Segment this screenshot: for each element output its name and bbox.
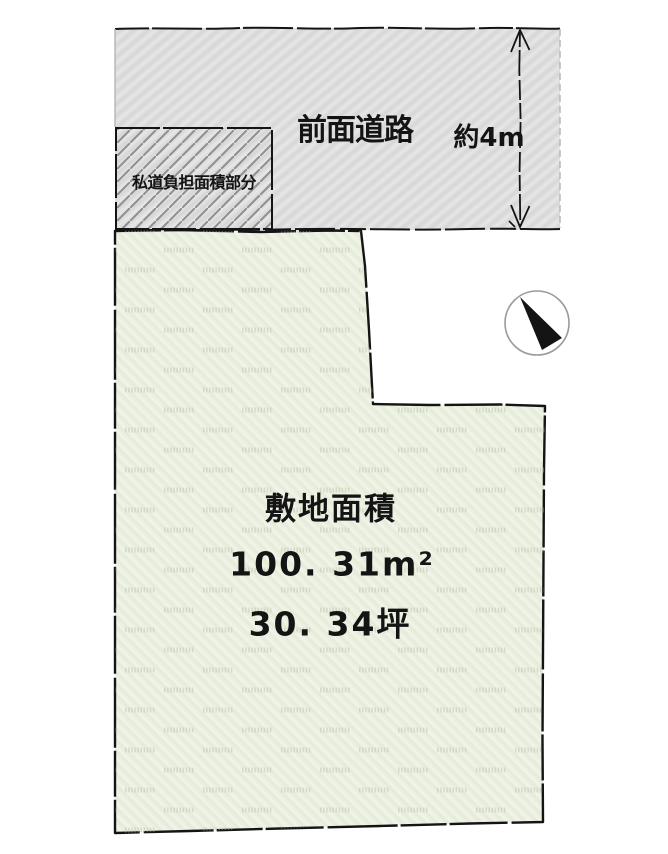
site-parcel [115,230,545,833]
road-top-edge [115,28,560,29]
site-area-tsubo: 30. 34坪 [249,608,412,641]
private-road-label: 私道負担面積部分 [132,175,256,191]
land-plot-diagram: 前面道路 約4m 私道負担面積部分 敷地面積 100. 31m² 30. 34坪 [0,0,668,854]
site-area-title: 敷地面積 [265,495,397,526]
road-width-label: 約4m [453,125,524,151]
north-compass [505,291,569,355]
site-watermark-overlay [115,230,545,833]
site-area-sqm: 100. 31m² [229,548,435,581]
front-road-label: 前面道路 [297,116,413,146]
